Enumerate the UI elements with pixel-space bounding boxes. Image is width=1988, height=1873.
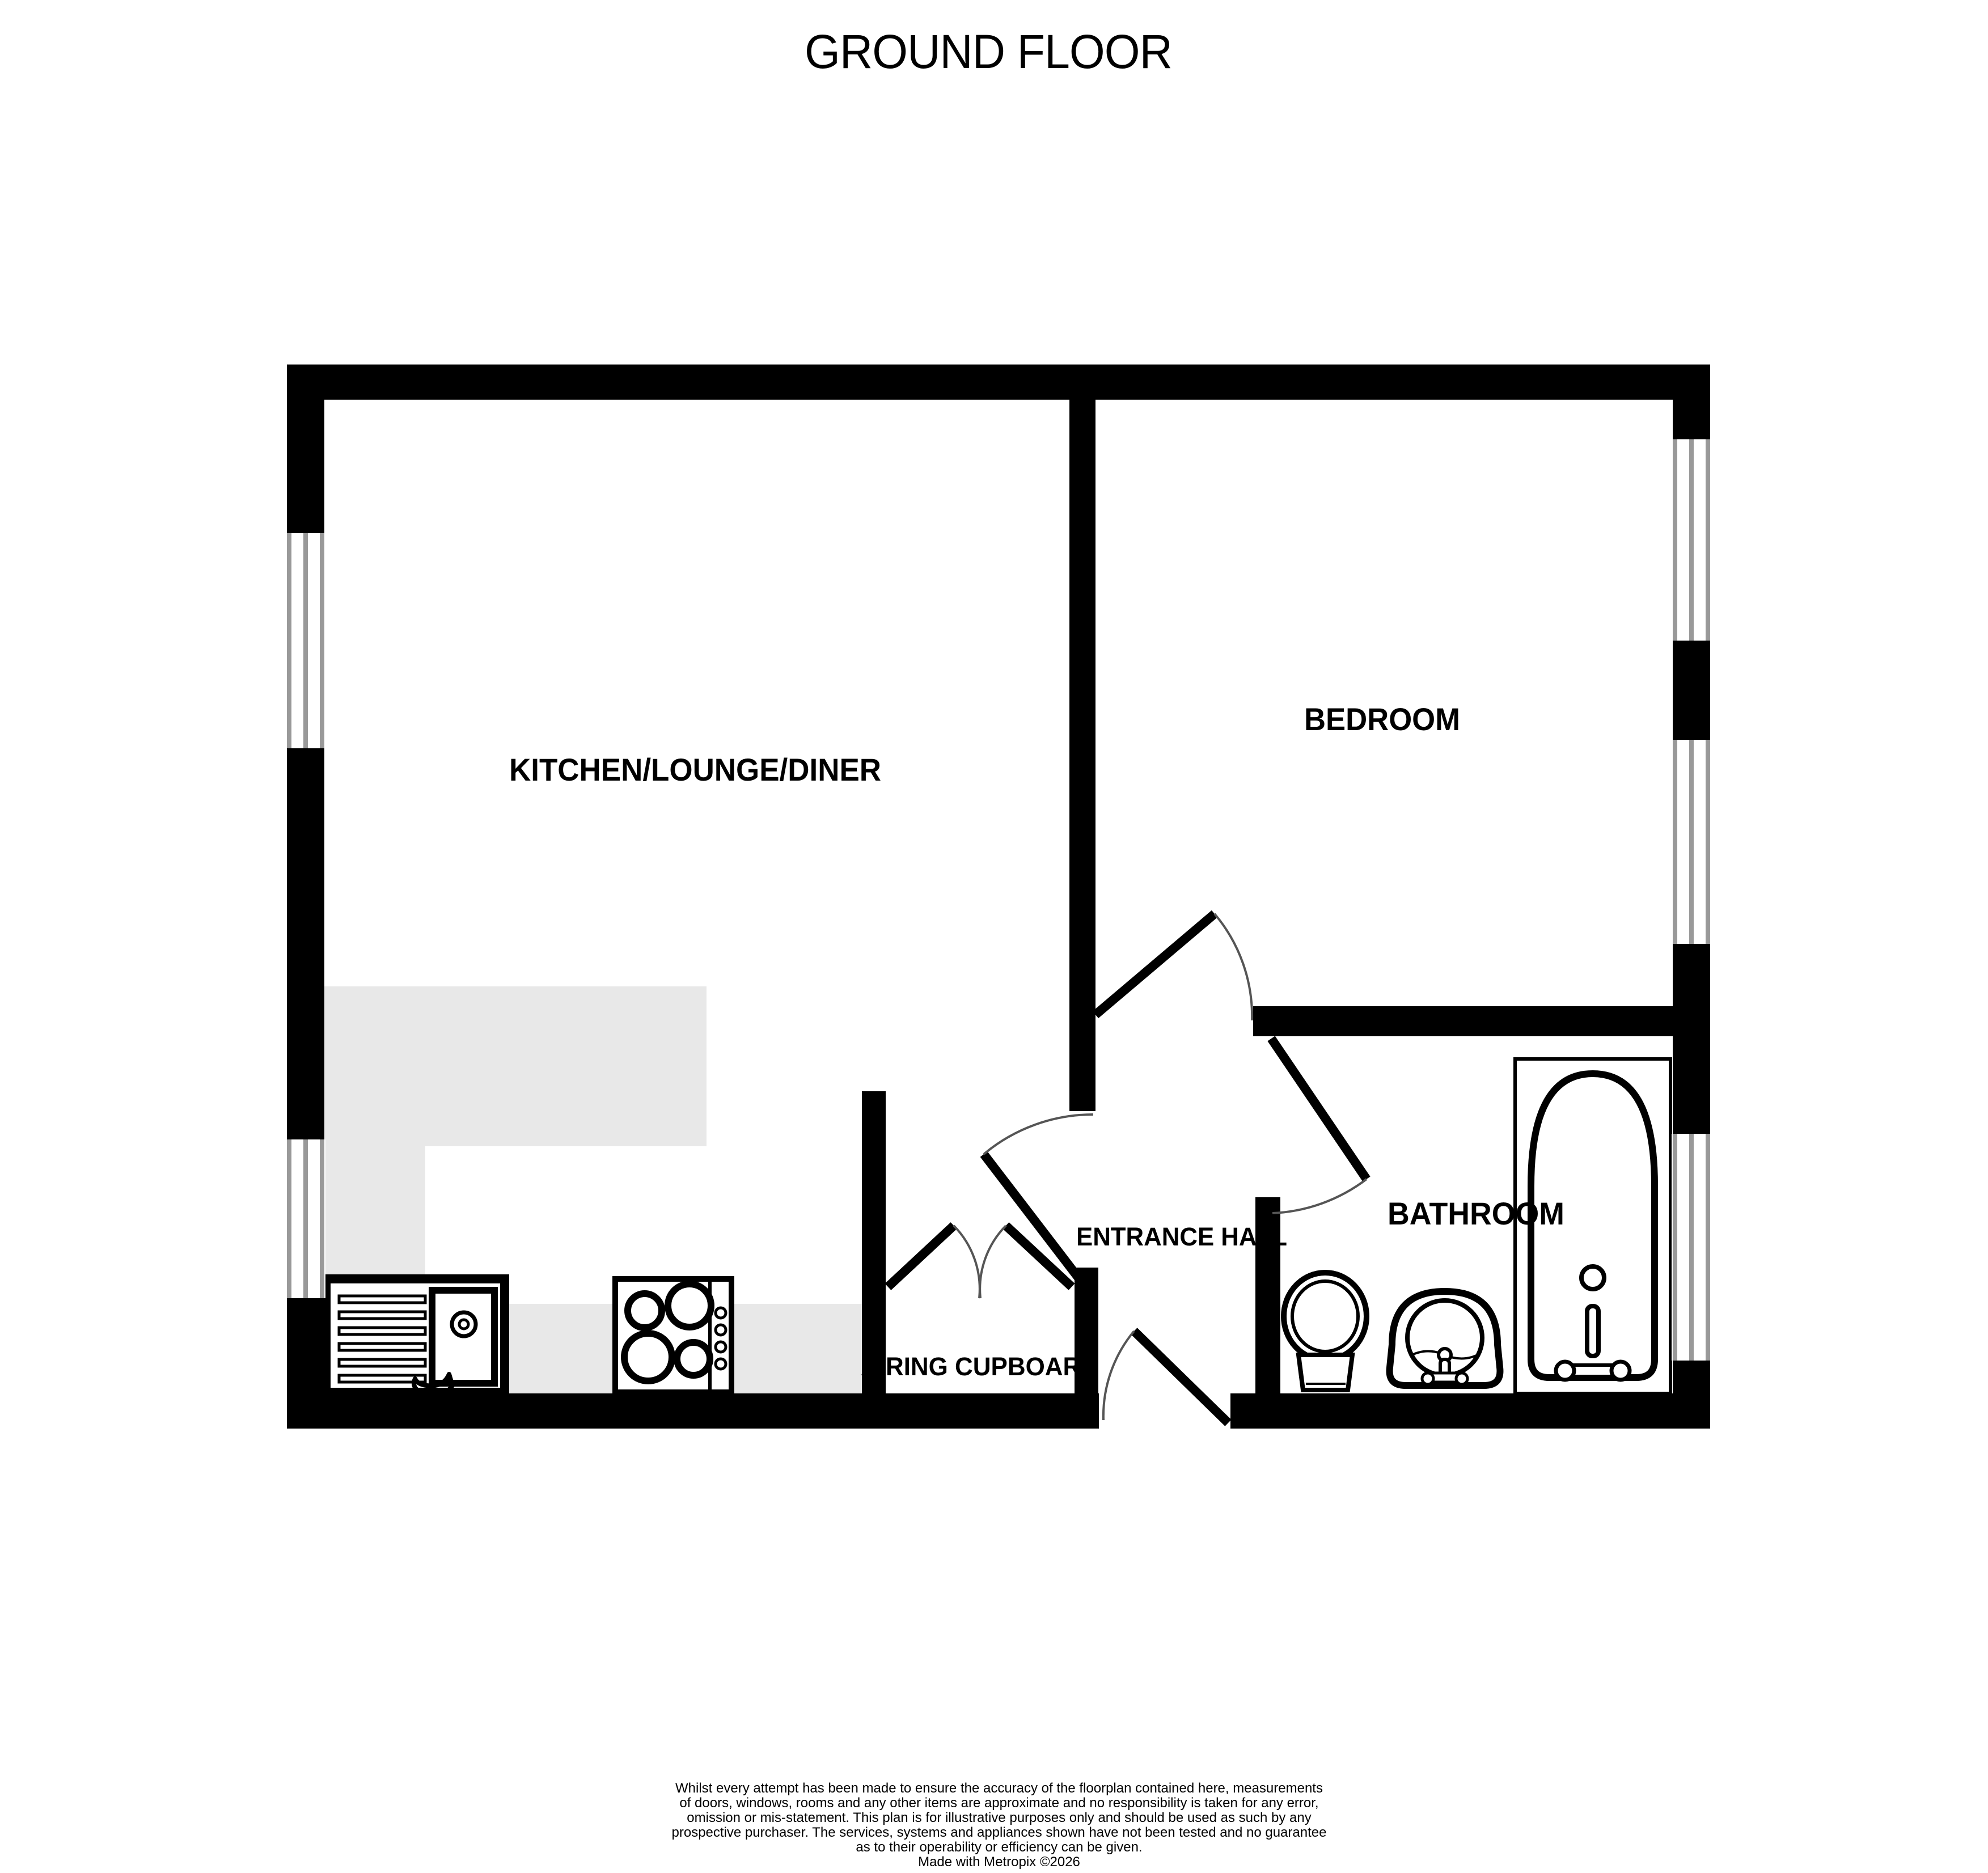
room-label-airing-cupboard: AIRING CUPBOARD — [861, 1352, 1099, 1381]
window-bedroom-upper — [1672, 439, 1711, 641]
floorplan-page: GROUND FLOOR — [0, 0, 1988, 1873]
disclaimer-branding: Made with Metropix ©2026 — [918, 1854, 1080, 1870]
wall-cupboard-right — [1075, 1268, 1098, 1393]
window-bedroom-lower — [1672, 740, 1711, 944]
wall-bedroom-bathroom — [1253, 1006, 1673, 1036]
window-kitchen-left-lower — [286, 1139, 325, 1298]
wall-cupboard-left — [862, 1091, 886, 1393]
wall-bottom-left — [287, 1393, 1099, 1429]
basin-icon — [1390, 1291, 1500, 1385]
room-label-kitchen-lounge-diner: KITCHEN/LOUNGE/DINER — [509, 752, 881, 787]
wall-top — [287, 365, 1710, 400]
room-label-bedroom: BEDROOM — [1304, 701, 1460, 737]
room-label-bathroom: BATHROOM — [1388, 1196, 1564, 1231]
wall-bathroom-hall — [1255, 1197, 1280, 1393]
disclaimer-line-2: of doors, windows, rooms and any other i… — [679, 1795, 1318, 1811]
wall-bottom-right — [1230, 1393, 1710, 1429]
wall-kitchen-bedroom — [1069, 400, 1095, 1111]
window-kitchen-left-upper — [286, 533, 325, 748]
page-title: GROUND FLOOR — [805, 25, 1172, 78]
counter-block — [324, 986, 707, 1146]
window-bathroom — [1672, 1134, 1711, 1361]
disclaimer-line-1: Whilst every attempt has been made to en… — [675, 1781, 1323, 1796]
kitchen-sink-icon — [326, 1279, 505, 1395]
disclaimer-line-3: omission or mis-statement. This plan is … — [687, 1810, 1311, 1825]
hob-icon — [615, 1279, 731, 1392]
disclaimer-line-5: as to their operability or efficiency ca… — [856, 1840, 1142, 1855]
disclaimer-line-4: prospective purchaser. The services, sys… — [672, 1825, 1327, 1840]
floorplan-svg: GROUND FLOOR — [0, 0, 1988, 1873]
